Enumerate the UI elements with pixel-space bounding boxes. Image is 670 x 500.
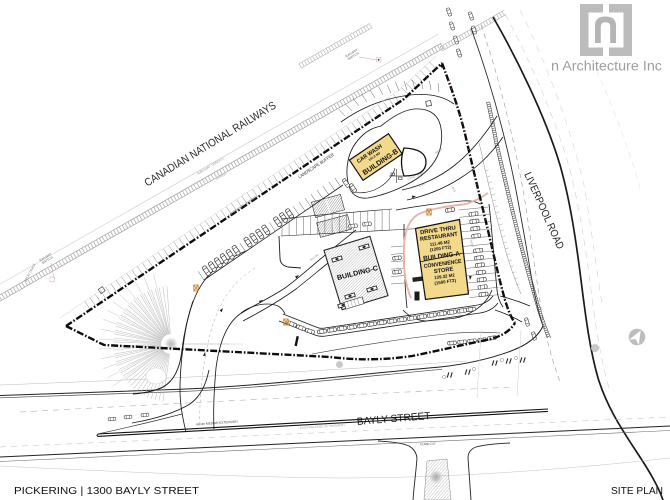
svg-text:CURB CUT: CURB CUT — [420, 442, 436, 447]
svg-text:EXISTING EDGE OF PAVEMENT: EXISTING EDGE OF PAVEMENT — [300, 423, 346, 430]
svg-text:66.0m MEDIAN EXTENSION: 66.0m MEDIAN EXTENSION — [196, 420, 238, 427]
svg-text:n Architecture Inc: n Architecture Inc — [551, 59, 662, 74]
svg-text:LANDSCAPE BUFFER: LANDSCAPE BUFFER — [227, 195, 258, 217]
svg-text:35.0: 35.0 — [451, 186, 457, 193]
svg-text:R15.0: R15.0 — [469, 239, 475, 248]
svg-text:R9.0m: R9.0m — [434, 146, 444, 154]
svg-text:LIVERPOOL ROAD: LIVERPOOL ROAD — [521, 170, 566, 251]
svg-text:PICKERING | 1300 BAYLY STREET: PICKERING | 1300 BAYLY STREET — [14, 485, 200, 497]
svg-text:RAILWAY TRACKS: RAILWAY TRACKS — [197, 156, 225, 175]
svg-text:CANADIAN NATIONAL RAILWAYS: CANADIAN NATIONAL RAILWAYS — [142, 100, 278, 190]
svg-text:BAYLY STREET: BAYLY STREET — [356, 410, 431, 428]
svg-text:SITE PLAN: SITE PLAN — [611, 485, 663, 497]
